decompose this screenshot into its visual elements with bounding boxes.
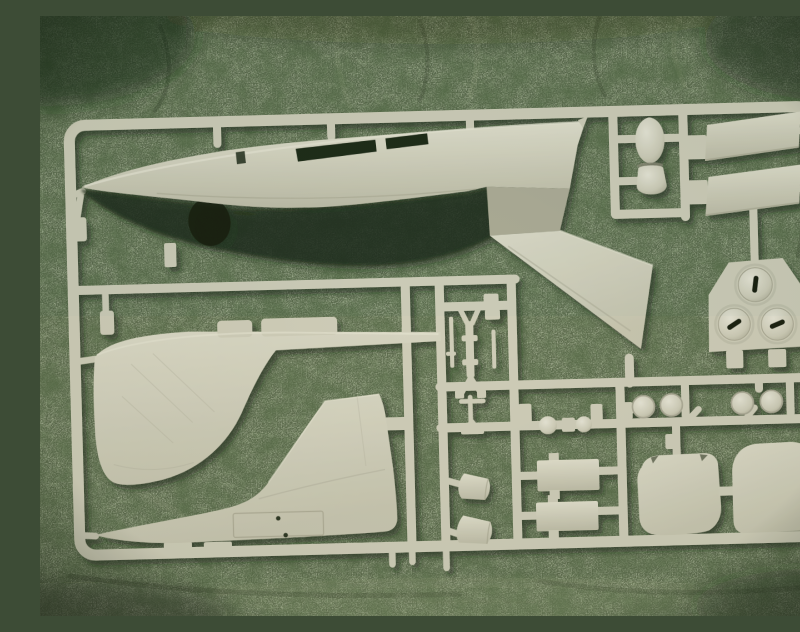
sprue-photograph — [40, 16, 800, 616]
photo-cast-top — [40, 16, 800, 316]
scene-canvas — [40, 16, 800, 616]
photo-cast-bottom — [40, 316, 800, 616]
